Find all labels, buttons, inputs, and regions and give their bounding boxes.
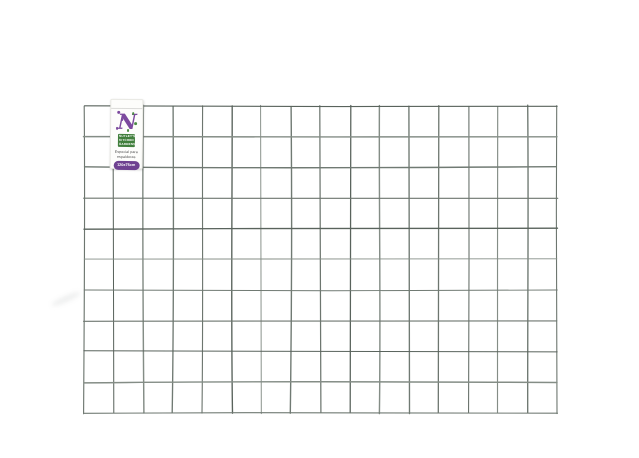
wire-mesh-panel — [0, 0, 639, 458]
tagline-line-2: espalderas — [111, 154, 142, 159]
product-label-tag: N NUTLEY'S KITCHEN GARDENS Especial para… — [110, 99, 144, 169]
brand-name-box: NUTLEY'S KITCHEN GARDENS — [118, 134, 135, 147]
size-badge: 120x75cm — [113, 161, 139, 170]
leaf-dot-icon — [134, 122, 137, 125]
flower-dot-icon — [117, 111, 120, 114]
flower-dot-icon — [116, 127, 119, 130]
floral-letter-n-logo: N — [115, 110, 139, 134]
flower-dot-icon — [132, 112, 135, 115]
leaf-dot-icon — [127, 129, 130, 132]
tagline-line-1: Especial para — [111, 150, 142, 155]
leaf-dot-icon — [121, 118, 124, 121]
product-photo: N NUTLEY'S KITCHEN GARDENS Especial para… — [0, 0, 639, 458]
